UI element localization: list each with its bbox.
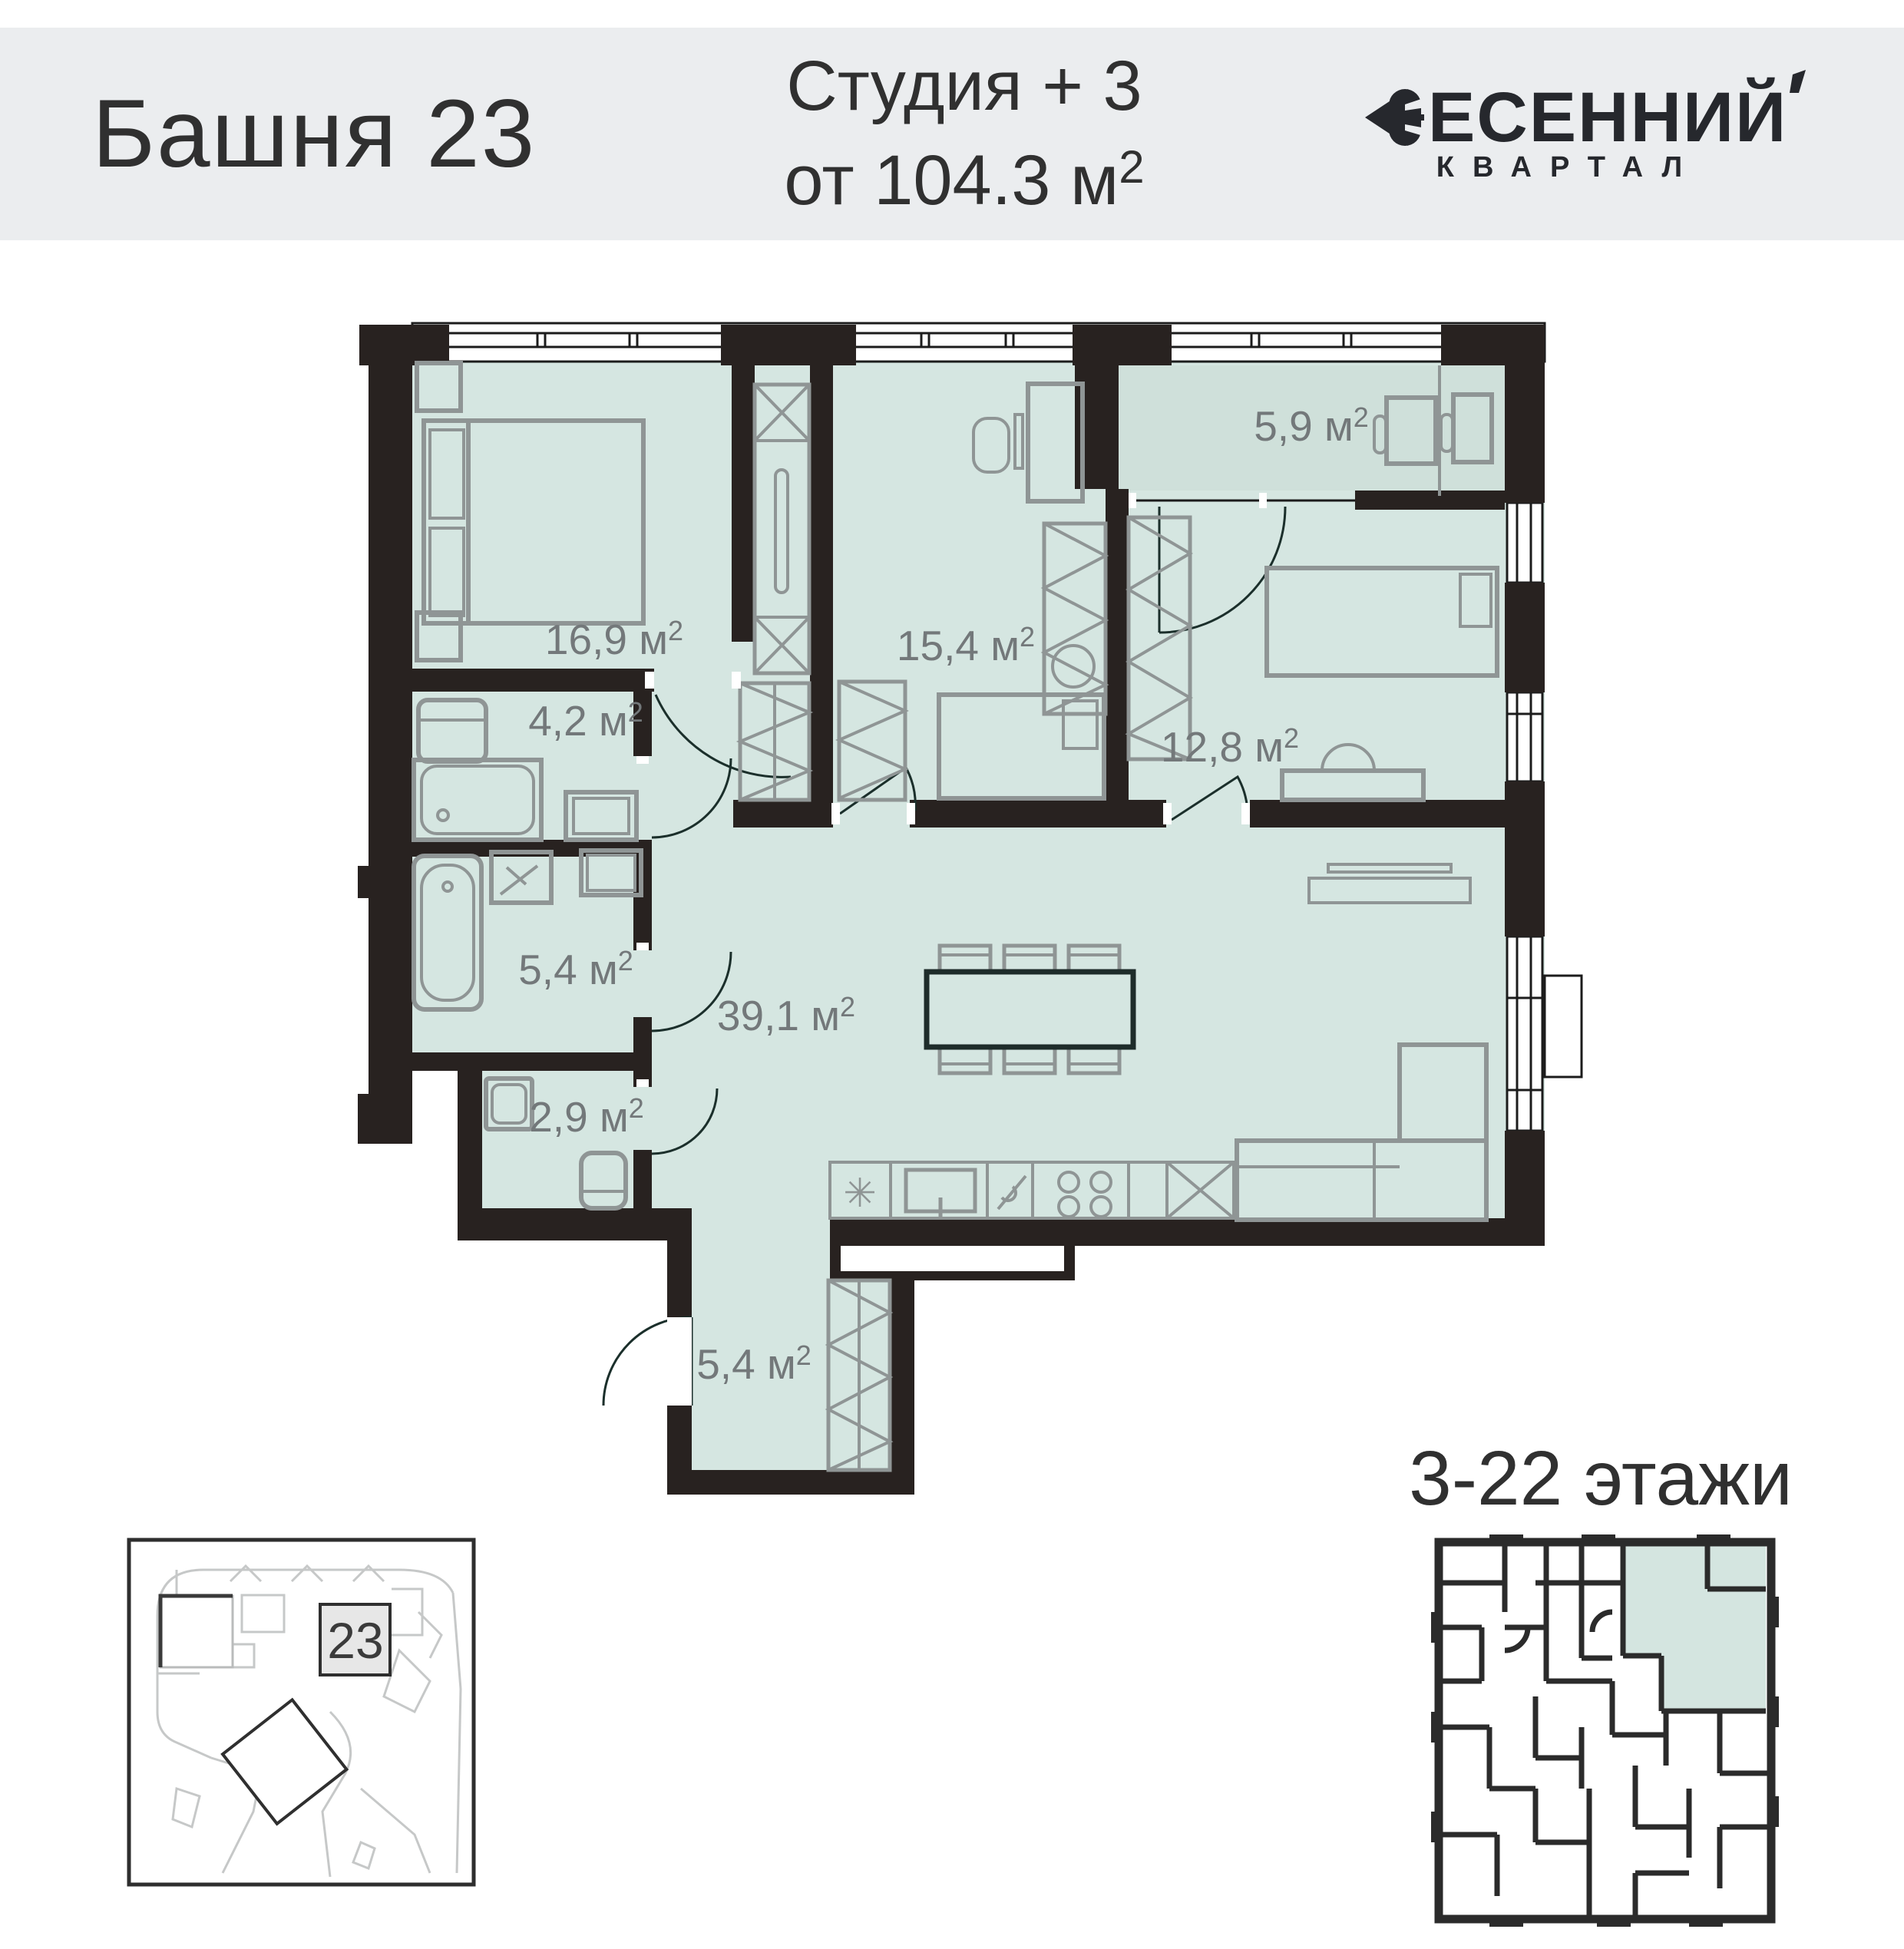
svg-text:Башня 23: Башня 23 [92,81,536,187]
svg-text:5,4 м2: 5,4 м2 [518,945,633,993]
svg-text:15,4 м2: 15,4 м2 [897,621,1035,669]
svg-text:3-22 этажи: 3-22 этажи [1409,1435,1793,1521]
svg-text:5,9 м2: 5,9 м2 [1254,401,1369,450]
svg-text:КВАРТАЛ: КВАРТАЛ [1436,151,1701,183]
svg-text:12,8 м2: 12,8 м2 [1161,722,1299,771]
svg-text:4,2 м2: 4,2 м2 [528,696,643,745]
svg-text:5,4 м2: 5,4 м2 [696,1340,812,1388]
svg-text:23: 23 [327,1612,383,1669]
svg-text:2,9 м2: 2,9 м2 [529,1092,644,1141]
svg-text:16,9 м2: 16,9 м2 [545,615,683,663]
svg-text:39,1 м2: 39,1 м2 [717,991,855,1039]
svg-text:ЕСЕННИЙ: ЕСЕННИЙ [1428,77,1787,157]
svg-text:✳: ✳ [843,1171,877,1216]
svg-text:Студия + 3: Студия + 3 [786,47,1142,125]
svg-text:от 104.3 м2: от 104.3 м2 [784,141,1144,220]
